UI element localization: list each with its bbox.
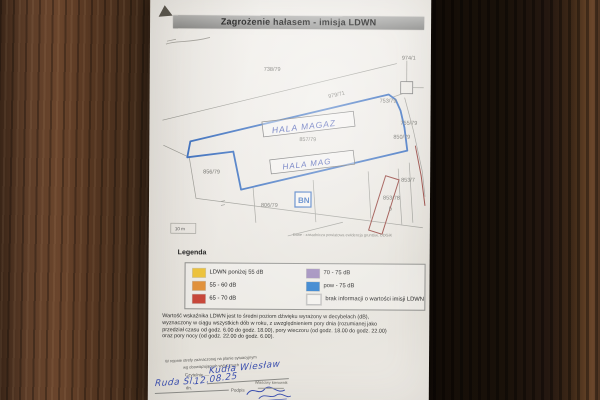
map-source-caption: Dane - zasadnicza powiatowa ewidencja gr… — [293, 232, 393, 238]
legend-swatch-yellow — [193, 268, 206, 277]
approver-line: Właściwy kierownik — [255, 381, 288, 385]
legend-label: pow - 75 dB — [323, 283, 354, 289]
bn-box-label: BN — [298, 196, 310, 205]
legend-label: 65 - 70 dB — [209, 295, 236, 301]
scale-bar-label: 10 m — [175, 226, 185, 231]
legend-swatch-none — [306, 294, 321, 305]
legend-swatch-red — [192, 294, 205, 303]
red-building-outlines — [369, 145, 426, 234]
pencil-squiggle — [164, 34, 212, 48]
cadastral-lines — [162, 59, 426, 237]
legend-swatch-purple — [307, 269, 320, 278]
plot-label: 753/79 — [380, 98, 397, 104]
plot-label: 853/7 — [401, 178, 415, 184]
plot-label: b — [389, 207, 392, 213]
approver-micro-line — [258, 388, 284, 389]
plot-label: 738/79 — [264, 67, 281, 73]
plot-label: 853/78 — [383, 196, 400, 202]
plot-label: 755/79 — [400, 121, 417, 127]
legend-title: Legenda — [178, 249, 207, 256]
signature-field-label: Podpis — [231, 388, 245, 393]
plot-label: 806/79 — [261, 203, 278, 209]
page-title: Zagrożenie hałasem - imisja LDWN — [173, 15, 424, 30]
approver-stamp-squiggle — [257, 390, 293, 400]
plot-label: 857/79 — [299, 137, 316, 143]
corner-triangle-marker — [158, 5, 173, 17]
legend-box: LDWN poniżej 55 dB 55 - 60 dB 65 - 70 dB… — [184, 262, 425, 310]
ldwn-definition-paragraph: Wartość wskaźnika LDWN jest to średni po… — [162, 313, 424, 342]
date-field-label: dn. — [186, 385, 192, 390]
legend-label: brak informacji o wartości imisji LDWN — [325, 296, 424, 303]
legend-swatch-orange — [192, 281, 205, 290]
photo-of-document: Zagrożenie hałasem - imisja LDWN — [0, 0, 600, 400]
legend-label: LDWN poniżej 55 dB — [210, 269, 264, 275]
plot-label: 979/71 — [328, 91, 346, 101]
plot-label: 856/79 — [203, 169, 220, 175]
plot-number-labels: 738/79 974/1 979/71 753/79 755/79 850/79… — [203, 54, 418, 212]
cadastral-map: BN HALA MAGAZ HALA MAG 738/79 974/1 979/… — [155, 49, 431, 246]
small-building-square — [401, 82, 413, 94]
legend-label: 70 - 75 dB — [324, 270, 351, 276]
plot-label: 974/1 — [402, 56, 416, 62]
legend-swatch-blue — [306, 282, 319, 291]
legend-label: 55 - 60 dB — [209, 282, 236, 288]
plot-label: 850/79 — [393, 135, 410, 141]
site-boundary-blue — [187, 93, 408, 190]
